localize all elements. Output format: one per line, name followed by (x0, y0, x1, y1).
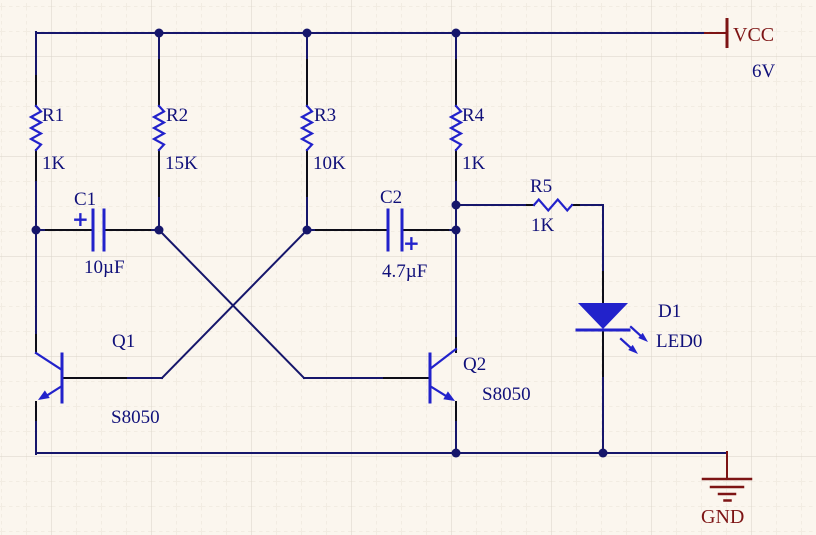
resistor-value: 1K (42, 153, 66, 174)
resistor-ref: R2 (166, 105, 188, 126)
junction-dot (452, 29, 461, 38)
vcc-voltage: 6V (752, 61, 776, 82)
led-value: LED0 (656, 331, 702, 352)
transistor-ref: Q1 (112, 331, 135, 352)
capacitor-value: 10µF (84, 257, 125, 278)
transistor-value: S8050 (482, 384, 531, 405)
resistor-value: 1K (531, 215, 555, 236)
capacitor-value: 4.7µF (382, 261, 427, 282)
capacitor-ref: C2 (380, 187, 402, 208)
resistor-ref: R5 (530, 176, 552, 197)
junction-dot (155, 29, 164, 38)
transistor-value: S8050 (111, 407, 160, 428)
schematic-svg[interactable]: R1 1K R2 15K R3 10K R4 1K R5 1K C1 + 10µ… (0, 0, 816, 535)
resistor-value: 1K (462, 153, 486, 174)
led-ref: D1 (658, 301, 681, 322)
junction-dot (452, 226, 461, 235)
gnd-label: GND (701, 506, 744, 528)
junction-dot (303, 226, 312, 235)
transistor-ref: Q2 (463, 354, 486, 375)
resistor-ref: R4 (462, 105, 485, 126)
polarity-plus-icon: + (403, 231, 420, 255)
junction-dot (303, 29, 312, 38)
schematic-canvas[interactable]: R1 1K R2 15K R3 10K R4 1K R5 1K C1 + 10µ… (0, 0, 816, 535)
resistor-value: 10K (313, 153, 346, 174)
junction-dot (452, 201, 461, 210)
junction-dot (599, 449, 608, 458)
resistor-value: 15K (165, 153, 198, 174)
junction-dot (32, 226, 41, 235)
resistor-ref: R1 (42, 105, 64, 126)
vcc-label: VCC (733, 24, 774, 46)
junction-dot (452, 449, 461, 458)
resistor-ref: R3 (314, 105, 336, 126)
junction-dot (155, 226, 164, 235)
polarity-plus-icon: + (72, 207, 89, 231)
